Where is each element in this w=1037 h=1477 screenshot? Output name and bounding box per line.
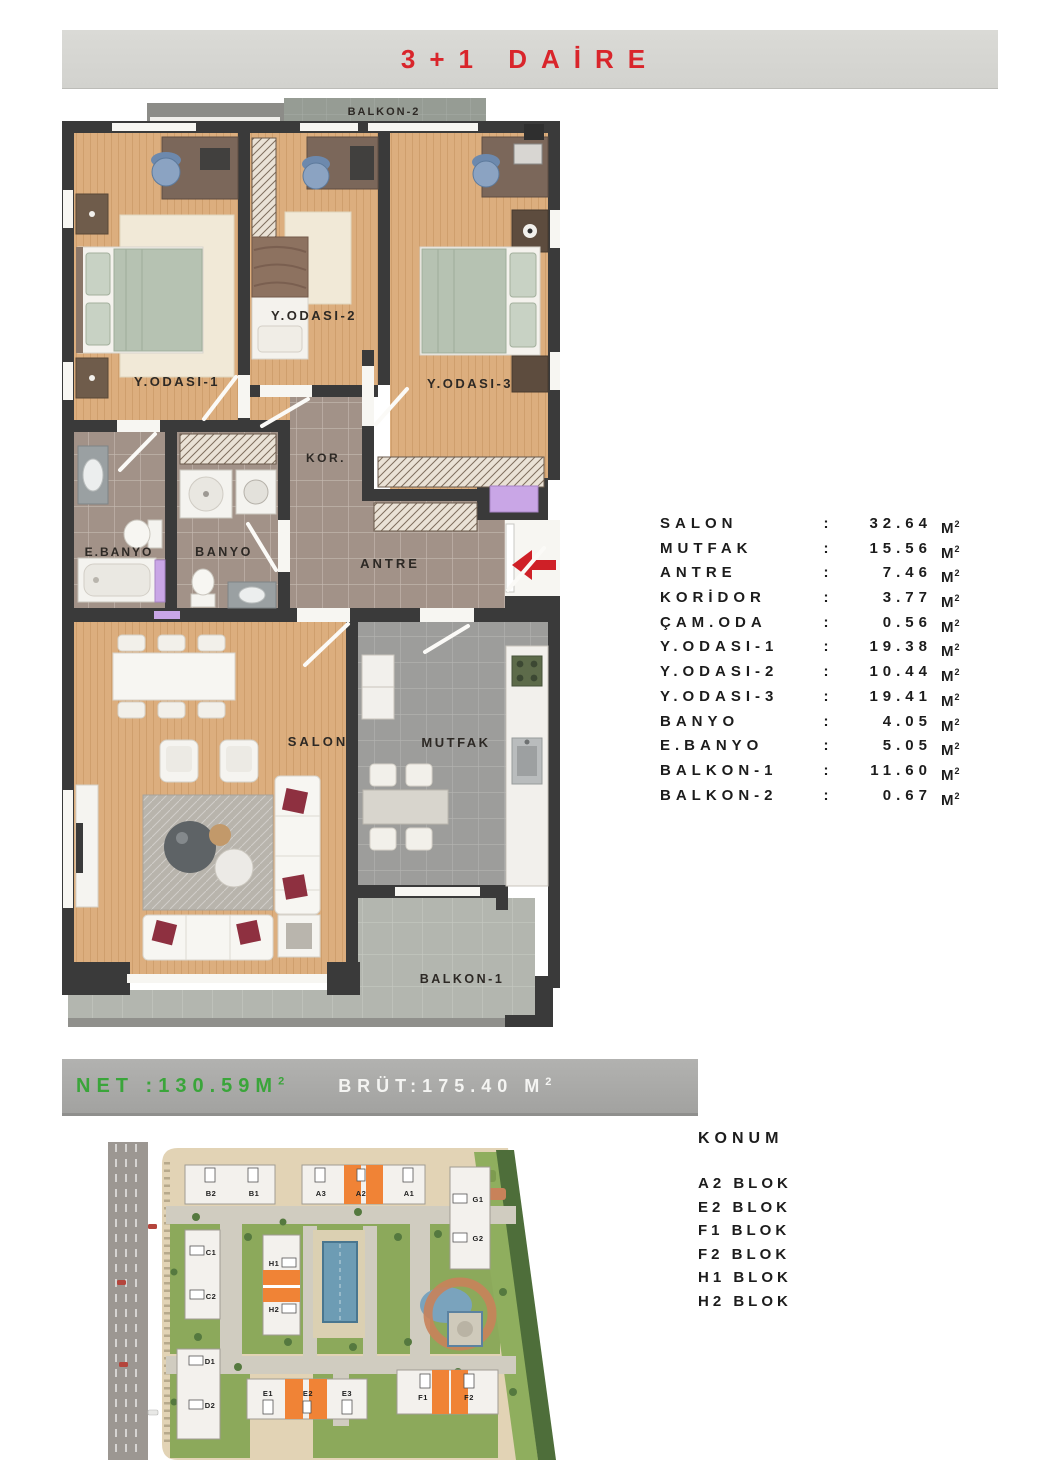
floor-plan: BALKON-2 Y.ODASI-1 Y.ODASI-2 Y.ODASI-3 K… — [62, 90, 560, 1035]
dining-table — [113, 653, 235, 700]
area-row: KORİDOR:3.77M2 — [660, 586, 990, 611]
label-b1: B1 — [249, 1189, 260, 1198]
label-kor: KOR. — [306, 451, 346, 465]
cam-oda-wardrobe — [180, 434, 276, 464]
label-balkon1: BALKON-1 — [420, 972, 505, 986]
label-b2: B2 — [206, 1189, 217, 1198]
label-balkon2: BALKON-2 — [348, 106, 421, 118]
brut-area: BRÜT:175.40 M2 — [338, 1076, 557, 1097]
block-f-highlight — [432, 1370, 449, 1414]
konum-item: F1 BLOK — [698, 1219, 898, 1243]
label-g1: G1 — [472, 1195, 483, 1204]
net-area: NET :130.59M2 — [76, 1075, 290, 1098]
label-ebanyo: E.BANYO — [85, 545, 154, 559]
pillow — [282, 788, 308, 814]
label-salon: SALON — [288, 734, 349, 749]
area-row: Y.ODASI-3:19.41M2 — [660, 685, 990, 710]
label-h2: H2 — [269, 1305, 280, 1314]
label-d2: D2 — [205, 1401, 216, 1410]
toilet — [191, 594, 215, 607]
konum-panel: KONUM A2 BLOK E2 BLOK F1 BLOK F2 BLOK H1… — [698, 1130, 898, 1314]
area-row: ANTRE:7.46M2 — [660, 561, 990, 586]
konum-item: H2 BLOK — [698, 1290, 898, 1314]
area-row: Y.ODASI-2:10.44M2 — [660, 660, 990, 685]
konum-heading: KONUM — [698, 1130, 898, 1148]
area-row: SALON:32.64M2 — [660, 512, 990, 537]
tv — [76, 823, 83, 873]
balkon1-floor — [358, 898, 535, 1018]
area-row: BALKON-1:11.60M2 — [660, 759, 990, 784]
label-antre: ANTRE — [360, 556, 420, 571]
coffee-table — [164, 821, 216, 873]
wardrobe — [374, 503, 477, 531]
area-summary-banner: NET :130.59M2 BRÜT:175.40 M2 — [62, 1059, 698, 1116]
brochure-page: 3+1 DAİRE — [0, 0, 1037, 1477]
label-a1: A1 — [404, 1189, 415, 1198]
block-b — [185, 1165, 275, 1204]
site-plan: B2 B1 A3 A2 A1 G1 G2 C1 C2 H1 H2 D1 D2 E… — [108, 1142, 573, 1460]
wardrobe — [252, 138, 276, 248]
block-g — [450, 1167, 490, 1269]
pillow — [236, 920, 261, 945]
area-row: BANYO:4.05M2 — [660, 710, 990, 735]
label-a3: A3 — [316, 1189, 327, 1198]
block-e2-highlight — [285, 1379, 303, 1419]
wardrobe — [378, 457, 544, 487]
pillow — [282, 874, 307, 899]
label-e1: E1 — [263, 1389, 273, 1398]
label-banyo: BANYO — [195, 545, 253, 559]
konum-item: E2 BLOK — [698, 1196, 898, 1220]
label-c2: C2 — [206, 1292, 217, 1301]
label-yodasi2: Y.ODASI-2 — [271, 308, 357, 323]
area-row: E.BANYO:5.05M2 — [660, 734, 990, 759]
area-row: MUTFAK:15.56M2 — [660, 537, 990, 562]
kitchen-table — [363, 790, 448, 824]
konum-item: F2 BLOK — [698, 1243, 898, 1267]
label-yodasi3: Y.ODASI-3 — [427, 376, 513, 391]
pool-area — [313, 1230, 365, 1338]
area-row: BALKON-2:0.67M2 — [660, 784, 990, 809]
nightstand — [512, 356, 548, 392]
konum-item: A2 BLOK — [698, 1172, 898, 1196]
cam-oda-closet — [490, 486, 538, 512]
label-e3: E3 — [342, 1389, 352, 1398]
page-title-text: 3+1 DAİRE — [401, 44, 659, 75]
label-h1: H1 — [269, 1259, 280, 1268]
label-d1: D1 — [205, 1357, 216, 1366]
label-c1: C1 — [206, 1248, 217, 1257]
koridor-floor — [290, 397, 362, 608]
label-yodasi1: Y.ODASI-1 — [134, 374, 220, 389]
block-c — [185, 1230, 220, 1319]
konum-item: H1 BLOK — [698, 1266, 898, 1290]
stove — [512, 656, 542, 686]
page-title: 3+1 DAİRE — [62, 30, 998, 89]
label-f1: F1 — [418, 1393, 428, 1402]
label-a2: A2 — [356, 1189, 367, 1198]
label-g2: G2 — [472, 1234, 483, 1243]
area-row: Y.ODASI-1:19.38M2 — [660, 635, 990, 660]
label-e2: E2 — [303, 1389, 313, 1398]
road — [108, 1142, 148, 1460]
area-row: ÇAM.ODA:0.56M2 — [660, 611, 990, 636]
label-mutfak: MUTFAK — [421, 735, 490, 750]
area-list: SALON:32.64M2 MUTFAK:15.56M2 ANTRE:7.46M… — [660, 512, 990, 808]
label-f2: F2 — [464, 1393, 474, 1402]
